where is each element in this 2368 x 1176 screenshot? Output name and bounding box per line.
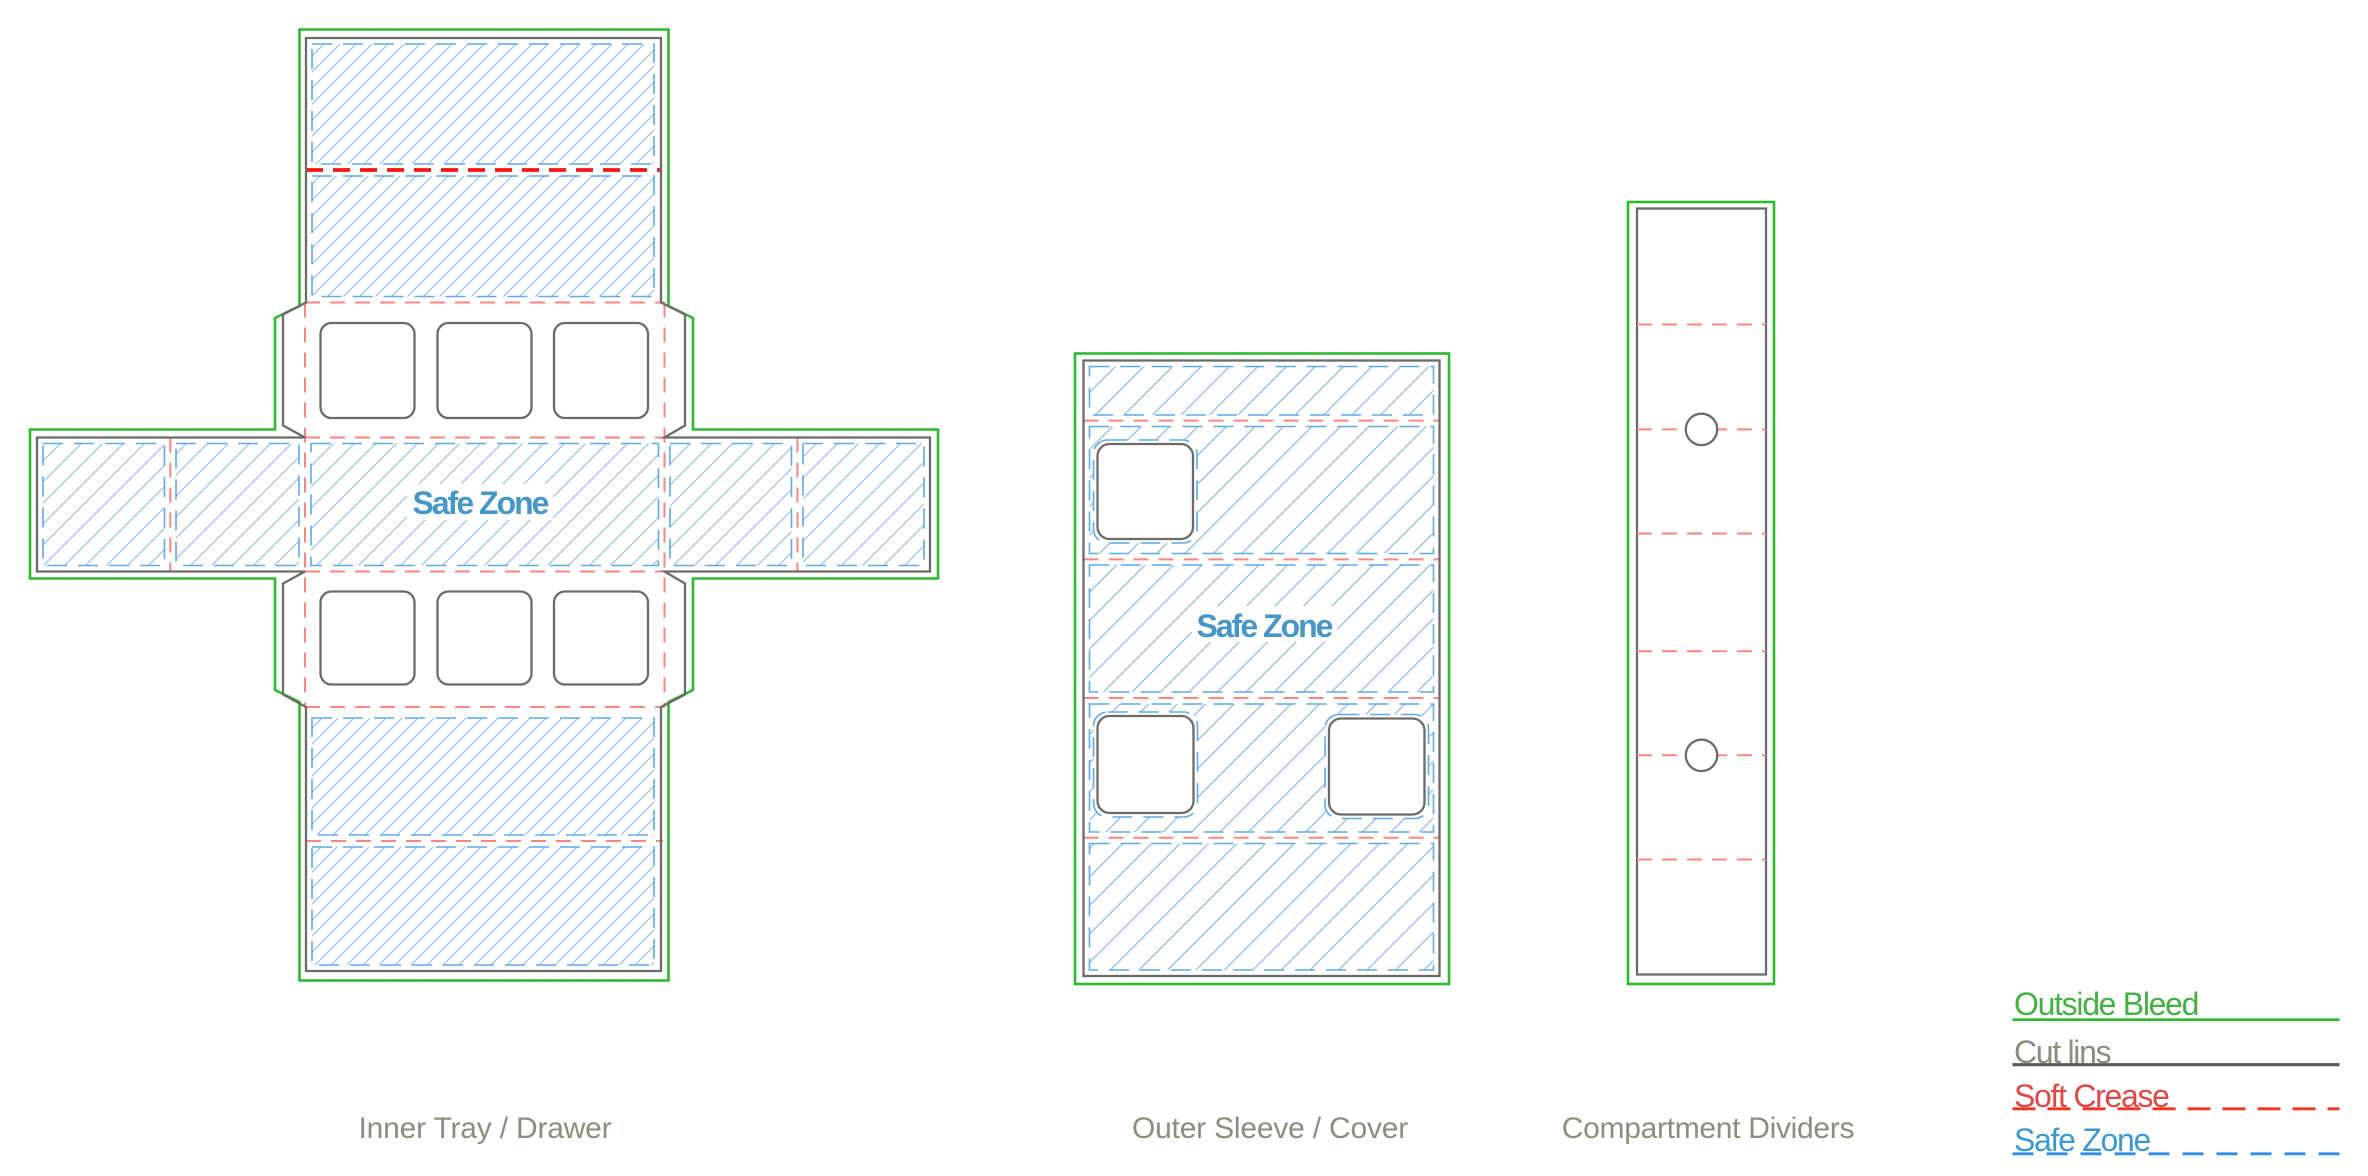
svg-text:Outside Bleed: Outside Bleed: [2014, 986, 2198, 1022]
svg-text:Safe Zone: Safe Zone: [413, 485, 549, 521]
svg-text:Outer Sleeve / Cover: Outer Sleeve / Cover: [1132, 1112, 1408, 1145]
svg-text:Safe Zone: Safe Zone: [1197, 608, 1333, 644]
svg-text:Inner Tray / Drawer: Inner Tray / Drawer: [359, 1112, 612, 1145]
svg-text:Compartment Dividers: Compartment Dividers: [1562, 1112, 1854, 1145]
